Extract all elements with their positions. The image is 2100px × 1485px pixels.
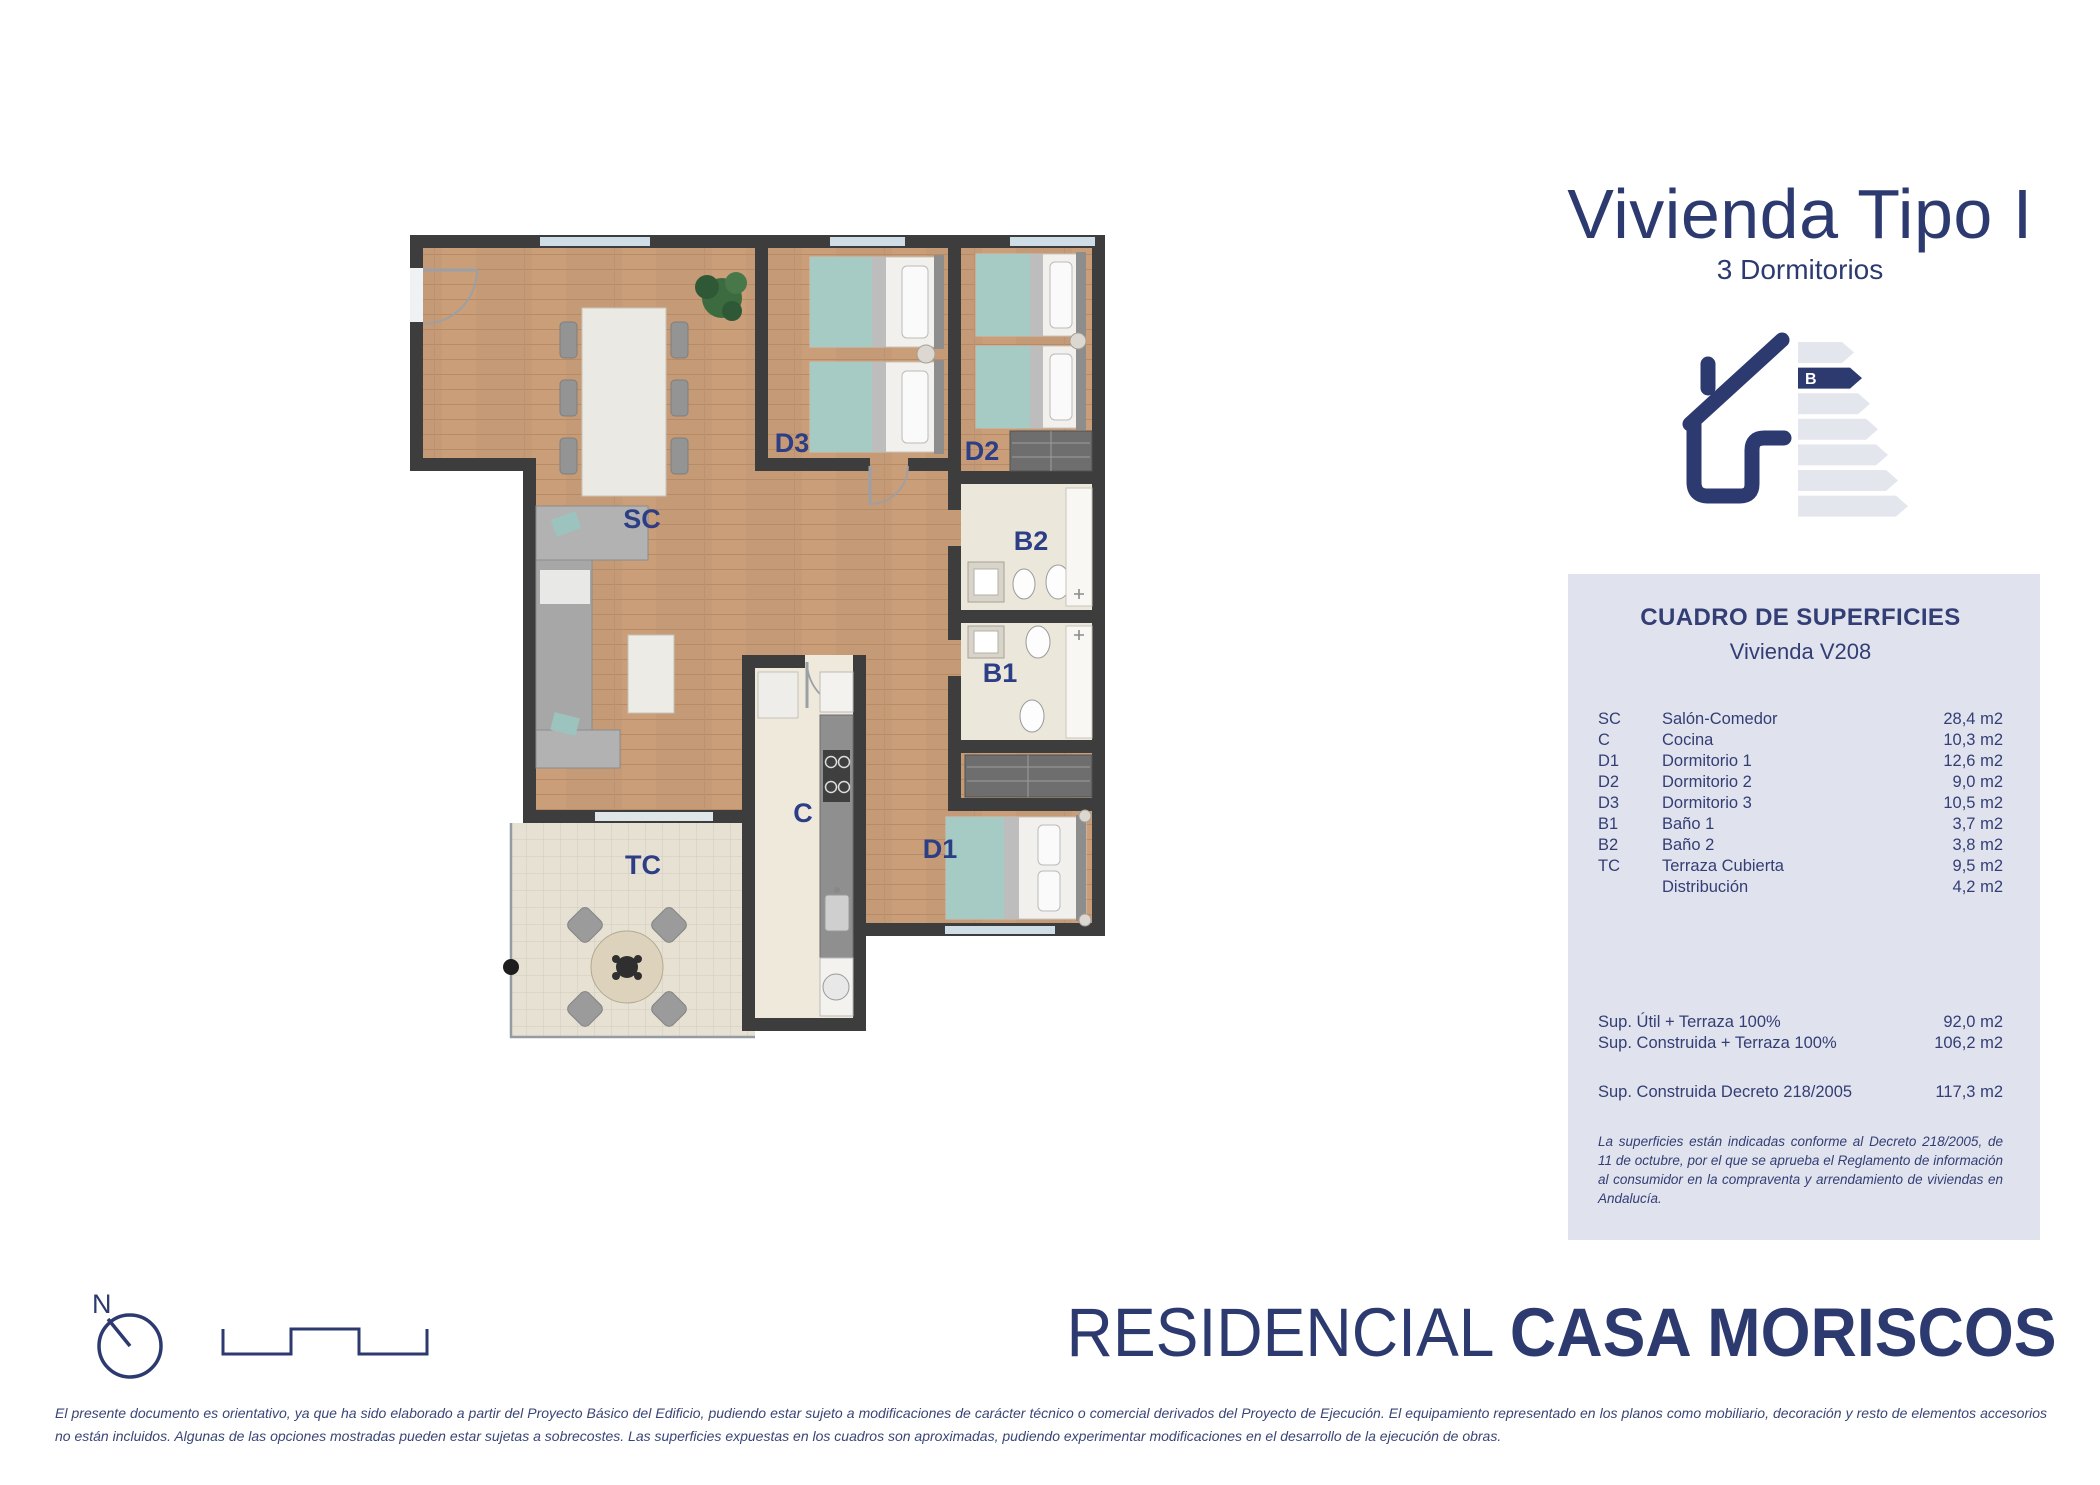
row-name: Cocina [1662,730,1908,751]
row-code: SC [1598,709,1662,730]
nightstand [1079,810,1091,822]
table-row: B1Baño 13,7 m2 [1598,814,2003,835]
window [540,237,650,246]
bedroom1-area [946,755,1092,926]
row-name: Distribución [1662,877,1908,898]
total-name: Sup. Útil + Terraza 100% [1598,1012,1908,1033]
double-bed [946,815,1086,921]
row-value: 10,5 m2 [1908,793,2003,814]
room-label-b1: B1 [983,658,1018,688]
toilet [1020,700,1044,732]
row-code: B2 [1598,835,1662,856]
table-row: D2Dormitorio 29,0 m2 [1598,772,2003,793]
table-row: TCTerraza Cubierta9,5 m2 [1598,856,2003,877]
compass-north-letter: N [92,1289,112,1319]
total-row: Sup. Útil + Terraza 100%92,0 m2 [1598,1012,2003,1033]
total-row: Sup. Construida + Terraza 100%106,2 m2 [1598,1033,2003,1054]
window [945,926,1055,934]
page-subtitle: 3 Dormitorios [1545,254,2055,286]
washer [820,958,853,1016]
terrace-centerpiece [612,955,642,980]
single-bed [810,255,944,349]
total-name: Sup. Construida + Terraza 100% [1598,1033,1908,1054]
wardrobe [965,755,1092,797]
row-code: D2 [1598,772,1662,793]
row-name: Salón-Comedor [1662,709,1908,730]
table-row: Distribución4,2 m2 [1598,877,2003,898]
row-value: 3,7 m2 [1908,814,2003,835]
terrace-glass-door [595,812,713,821]
hob [823,750,850,802]
room-label-b2: B2 [1014,526,1049,556]
surfaces-title: CUADRO DE SUPERFICIES [1598,604,2003,632]
row-value: 28,4 m2 [1908,709,2003,730]
graphic-scale-icon [221,1323,431,1368]
row-code: B1 [1598,814,1662,835]
table-row: CCocina10,3 m2 [1598,730,2003,751]
row-code: D1 [1598,751,1662,772]
single-bed [976,344,1086,430]
table-row: SCSalón-Comedor28,4 m2 [1598,709,2003,730]
decree-name: Sup. Construida Decreto 218/2005 [1598,1082,1908,1103]
room-label-tc: TC [625,850,661,880]
decree-row: Sup. Construida Decreto 218/2005117,3 m2 [1598,1082,2003,1103]
kitchen-cabinet [758,672,798,718]
legal-disclaimer: El presente documento es orientativo, ya… [55,1402,2047,1447]
bidet [1013,569,1035,599]
row-value: 3,8 m2 [1908,835,2003,856]
row-value: 10,3 m2 [1908,730,2003,751]
row-name: Terraza Cubierta [1662,856,1908,877]
decree-value: 117,3 m2 [1908,1082,2003,1103]
toilet [1026,626,1050,658]
row-value: 9,5 m2 [1908,856,2003,877]
floor-plan: SC D3 D2 B2 B1 C D1 TC [390,210,1130,1060]
surfaces-subtitle: Vivienda V208 [1598,639,2003,665]
house-icon [1690,340,1784,496]
room-label-c: C [793,798,813,828]
brand-prefix: RESIDENCIAL [1067,1294,1510,1371]
row-code: TC [1598,856,1662,877]
wardrobe [1010,431,1092,471]
row-name: Dormitorio 1 [1662,751,1908,772]
surfaces-panel: CUADRO DE SUPERFICIES Vivienda V208 SCSa… [1568,574,2040,1240]
energy-certificate-icon: B [1678,326,1913,536]
total-value: 106,2 m2 [1908,1033,2003,1054]
entry-door-opening [410,268,423,322]
row-name: Dormitorio 2 [1662,772,1908,793]
brand-logo: RESIDENCIAL CASA MORISCOS [1067,1298,2057,1367]
terrace-drain [503,959,519,975]
brand-name: CASA MORISCOS [1510,1294,2057,1371]
row-name: Baño 1 [1662,814,1908,835]
table-row: B2Baño 23,8 m2 [1598,835,2003,856]
sink [968,626,1004,658]
row-name: Baño 2 [1662,835,1908,856]
table-row: D3Dormitorio 310,5 m2 [1598,793,2003,814]
room-label-sc: SC [623,504,661,534]
room-label-d2: D2 [965,436,1000,466]
row-name: Dormitorio 3 [1662,793,1908,814]
table-row: D1Dormitorio 112,6 m2 [1598,751,2003,772]
fridge [820,672,853,712]
total-value: 92,0 m2 [1908,1012,2003,1033]
single-bed [976,252,1086,338]
row-code [1598,877,1662,898]
surfaces-totals: Sup. Útil + Terraza 100%92,0 m2 Sup. Con… [1598,1012,2003,1054]
shower [1066,626,1092,738]
surfaces-table: SCSalón-Comedor28,4 m2 CCocina10,3 m2 D1… [1598,709,2003,898]
floor-plan-drawing: SC D3 D2 B2 B1 C D1 TC [390,210,1130,1060]
room-label-d1: D1 [923,834,958,864]
row-code: D3 [1598,793,1662,814]
row-code: C [1598,730,1662,751]
window [1010,237,1095,246]
row-value: 9,0 m2 [1908,772,2003,793]
room-label-d3: D3 [775,428,810,458]
energy-rating-letter: B [1805,371,1817,388]
window [830,237,905,246]
surfaces-decree: Sup. Construida Decreto 218/2005117,3 m2 [1598,1082,2003,1103]
nightstand [917,345,935,363]
single-bed [810,360,944,454]
sink [968,562,1004,602]
title-block: Vivienda Tipo I 3 Dormitorios [1545,178,2055,286]
row-value: 12,6 m2 [1908,751,2003,772]
row-value: 4,2 m2 [1908,877,2003,898]
energy-bars: B [1798,342,1908,517]
north-compass-icon: N [85,1286,195,1401]
surfaces-note: La superficies están indicadas conforme … [1598,1132,2003,1208]
coffee-table [628,635,674,713]
page-title: Vivienda Tipo I [1545,178,2055,252]
nightstand [1079,914,1091,926]
shower [1066,488,1092,606]
nightstand [1070,333,1086,349]
energy-rating-icon: B [1678,326,1913,536]
